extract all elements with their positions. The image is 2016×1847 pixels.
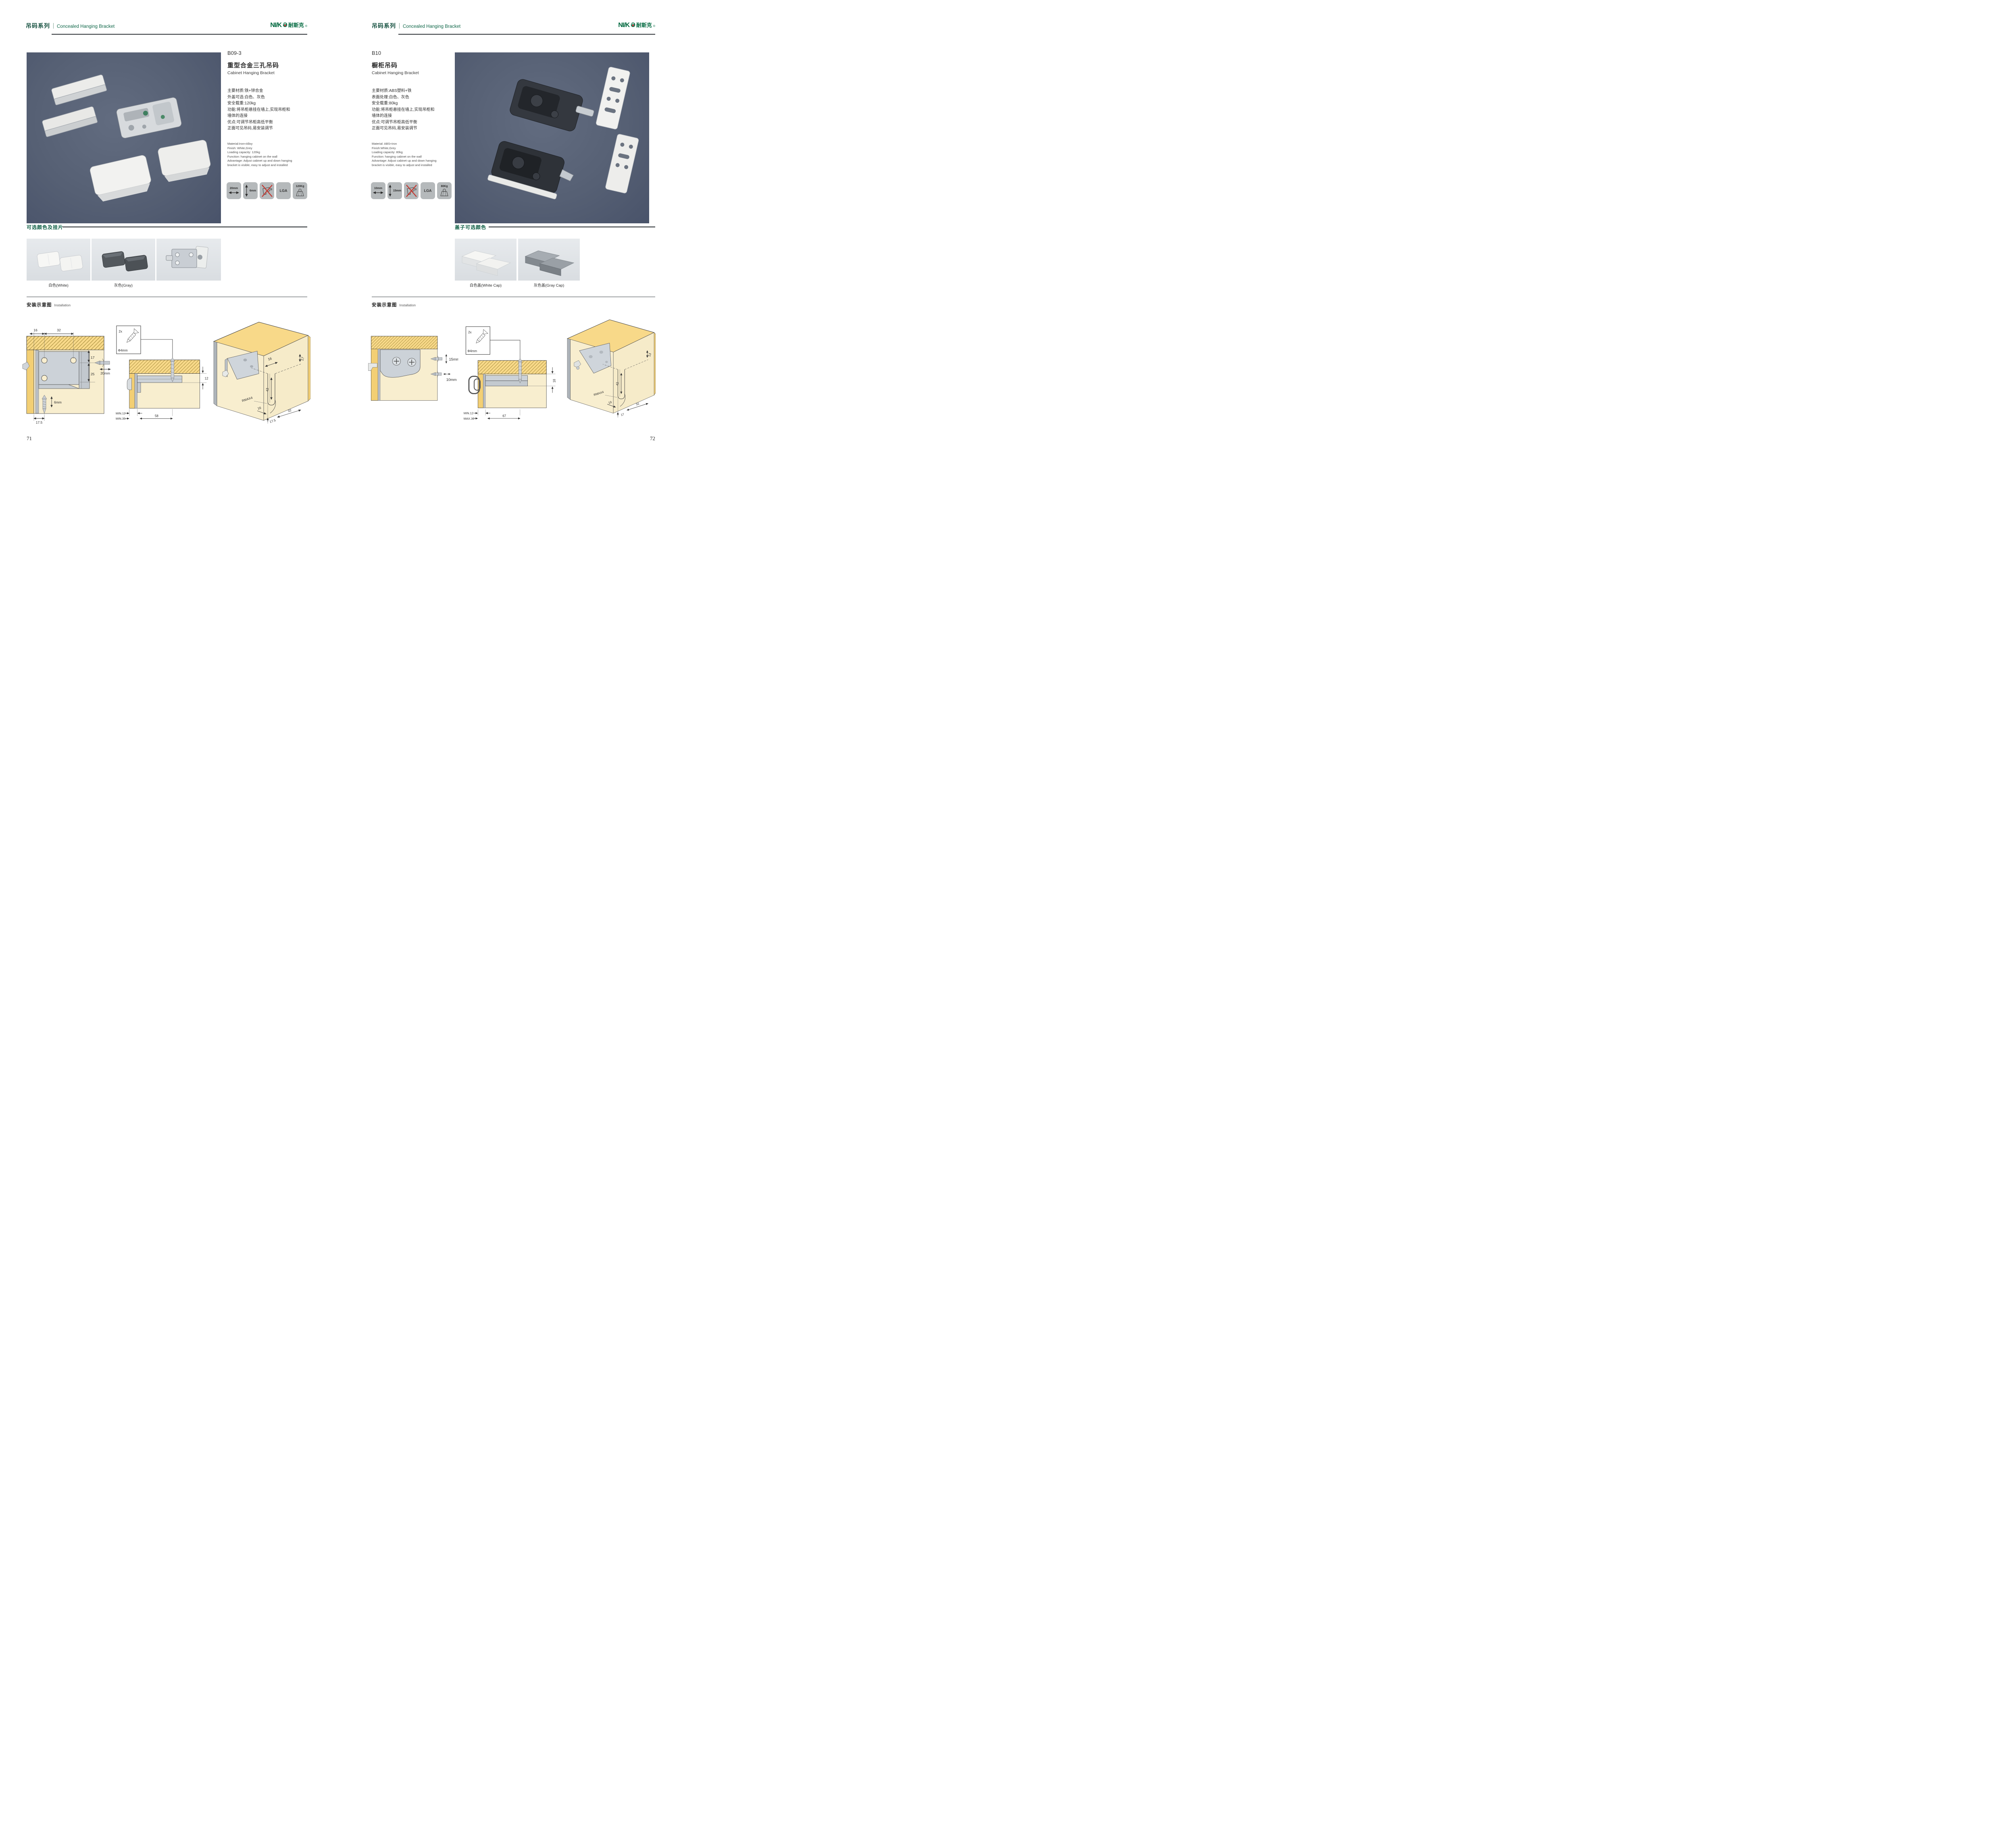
- svg-text:18: 18: [553, 379, 556, 383]
- product-title-en: Cabinet Hanging Bracket: [227, 71, 275, 75]
- badge-load: 120Kg: [293, 182, 307, 199]
- weight-icon: [295, 189, 305, 196]
- page-number-right: 72: [633, 435, 655, 442]
- install-drawing-side-section: 2x Φ4mm 18 MIN.12 MAX.: [463, 320, 559, 420]
- svg-text:MIN.35: MIN.35: [116, 417, 125, 420]
- svg-text:MIN.12: MIN.12: [464, 412, 473, 415]
- badge-height: 15mm: [387, 182, 402, 199]
- svg-text:42: 42: [616, 382, 619, 385]
- brand-logo-cn: 耐斯克: [288, 21, 304, 29]
- badge-height: 6mm: [243, 182, 258, 199]
- specs-english: Material: ABS+iron Finish:White,Grey Loa…: [372, 142, 456, 167]
- badge-load: 80Kg: [437, 182, 452, 199]
- hook-profile-icon: [127, 378, 131, 390]
- colors-section-title: 盖子可选颜色: [455, 224, 486, 231]
- no-drill-icon: [260, 183, 273, 198]
- install-divider: [372, 297, 655, 297]
- header-underline: [52, 34, 307, 35]
- bracket-plate-image: [156, 239, 221, 281]
- badge-lga: LGA: [276, 182, 291, 199]
- svg-text:Φ4mm: Φ4mm: [118, 349, 128, 352]
- brand-logo-glyph: Ə: [631, 22, 635, 29]
- product-photo-b09-3: [27, 52, 221, 223]
- svg-text:MAX.30: MAX.30: [464, 417, 475, 420]
- screw-icon: [170, 358, 175, 361]
- svg-text:32: 32: [287, 408, 292, 413]
- svg-text:17.5: 17.5: [36, 420, 43, 424]
- swatch-label-white-cap: 白色盖(White Cap): [455, 282, 516, 288]
- product-title-cn: 重型合金三孔吊码: [227, 61, 279, 69]
- brand-logo-text: NI/K: [270, 22, 281, 29]
- svg-text:16: 16: [33, 328, 37, 332]
- svg-text:2x: 2x: [119, 330, 122, 333]
- gray-cap-image: [518, 239, 580, 281]
- specs-chinese: 主要材质:铁+锌合金 外盖可选:白色、灰色 安全载重:120kg 功能:将吊柜悬…: [227, 88, 312, 132]
- horizontal-arrow-icon: [228, 191, 240, 195]
- install-drawing-side-section: 2x Φ4mm 12 MIN.12 MIN.35: [115, 321, 210, 420]
- brand-logo-right: NI/K Ə 耐斯克 ®: [590, 21, 655, 29]
- install-divider: [27, 297, 307, 297]
- specs-chinese: 主要材质:ABS塑料+铁 表面处理:白色、灰色 安全载重:80kg 功能:将吊柜…: [372, 88, 456, 132]
- swatch-label-white: 白色(White): [27, 282, 90, 288]
- swatch-gray: [92, 239, 155, 281]
- swatch-gray-cap: [518, 239, 580, 281]
- svg-text:17.5: 17.5: [269, 418, 276, 424]
- svg-text:10mm: 10mm: [446, 378, 457, 382]
- hanging-plate-parts: [42, 74, 107, 137]
- no-drill-icon: [405, 183, 418, 198]
- install-drawing-front-section: 15mm 10mm: [368, 323, 458, 408]
- product-code: B10: [372, 50, 381, 56]
- svg-text:MIN.12: MIN.12: [116, 412, 125, 415]
- svg-text:17: 17: [620, 412, 625, 417]
- abs-bracket-bottom: [487, 139, 577, 202]
- registered-mark: ®: [305, 25, 307, 28]
- svg-text:20mm: 20mm: [100, 371, 110, 375]
- svg-text:Φ4mm: Φ4mm: [467, 349, 477, 353]
- badge-width: 10mm: [371, 182, 385, 199]
- svg-text:17: 17: [91, 356, 95, 360]
- page-header-left: 吊码系列 Concealed Hanging Bracket: [26, 22, 115, 30]
- install-drawing-front-section: 16 32 17 25 20mm 6mm 17.5: [21, 322, 116, 424]
- install-drawing-perspective: 13 42 RMAX4 19 17 32: [561, 314, 656, 420]
- page-header-right: 吊码系列 Concealed Hanging Bracket: [372, 22, 460, 30]
- alloy-bracket-body: [116, 97, 182, 139]
- swatch-label-gray: 灰色(Gray): [92, 282, 155, 288]
- install-drawing-perspective: 16 17 42 RMAX4 16 17.5 32: [206, 316, 310, 426]
- header-separator: [53, 23, 54, 29]
- feature-badges: 20mm 6mm LGA 120Kg: [227, 182, 307, 199]
- vertical-arrow-icon: [388, 184, 392, 197]
- specs-english: Material:Iron+Alloy Finish: White,Grey L…: [227, 142, 312, 167]
- install-heading: 安装示意图 Installation: [27, 302, 71, 308]
- swatch-white-cap: [455, 239, 516, 281]
- catalog-spread: 吊码系列 Concealed Hanging Bracket NI/K Ə 耐斯…: [0, 0, 676, 462]
- svg-text:32: 32: [57, 328, 61, 332]
- svg-text:42: 42: [265, 388, 269, 392]
- svg-text:15mm: 15mm: [449, 357, 458, 361]
- screw-icon: [518, 358, 522, 362]
- badge-width: 20mm: [227, 182, 241, 199]
- brand-logo: NI/K Ə 耐斯克 ®: [242, 21, 307, 29]
- gray-cap-image: [92, 239, 155, 281]
- swatch-label-gray-cap: 灰色盖(Gray Cap): [518, 282, 580, 288]
- feature-badges: 10mm 15mm LGA 80Kg: [371, 182, 452, 199]
- product-title-cn: 橱柜吊码: [372, 61, 398, 69]
- vertical-arrow-icon: [245, 184, 248, 197]
- svg-text:67: 67: [502, 414, 506, 418]
- swatch-white: [27, 239, 90, 281]
- horizontal-arrow-icon: [373, 191, 384, 195]
- series-title-en: Concealed Hanging Bracket: [57, 24, 115, 29]
- swatch-bracket: [156, 239, 221, 281]
- weight-icon: [439, 189, 450, 196]
- hanging-plate-parts: [596, 67, 639, 193]
- product-code: B09-3: [227, 50, 242, 56]
- white-cap-image: [27, 239, 90, 281]
- product-title-en: Cabinet Hanging Bracket: [372, 71, 419, 75]
- brand-logo-glyph: Ə: [283, 22, 287, 29]
- abs-bracket-top: [509, 78, 598, 136]
- svg-text:32: 32: [635, 402, 640, 406]
- cover-cap-parts: [90, 139, 212, 203]
- install-heading: 安装示意图 Installation: [372, 302, 416, 308]
- header-underline-right: [398, 34, 655, 35]
- page-number-left: 71: [27, 435, 32, 442]
- svg-text:2x: 2x: [468, 331, 471, 334]
- svg-text:6mm: 6mm: [54, 400, 62, 404]
- colors-section-line: [489, 227, 655, 227]
- colors-section-line: [62, 227, 307, 227]
- white-cap-image: [455, 239, 516, 281]
- product-photo-b10: [455, 52, 649, 223]
- badge-no-drill: [260, 182, 274, 199]
- svg-text:25: 25: [91, 372, 95, 376]
- badge-no-drill: [404, 182, 419, 199]
- colors-section-title: 可选颜色及挂片: [27, 224, 63, 231]
- svg-text:58: 58: [155, 414, 158, 418]
- series-title-cn: 吊码系列: [26, 22, 50, 30]
- badge-lga: LGA: [421, 182, 435, 199]
